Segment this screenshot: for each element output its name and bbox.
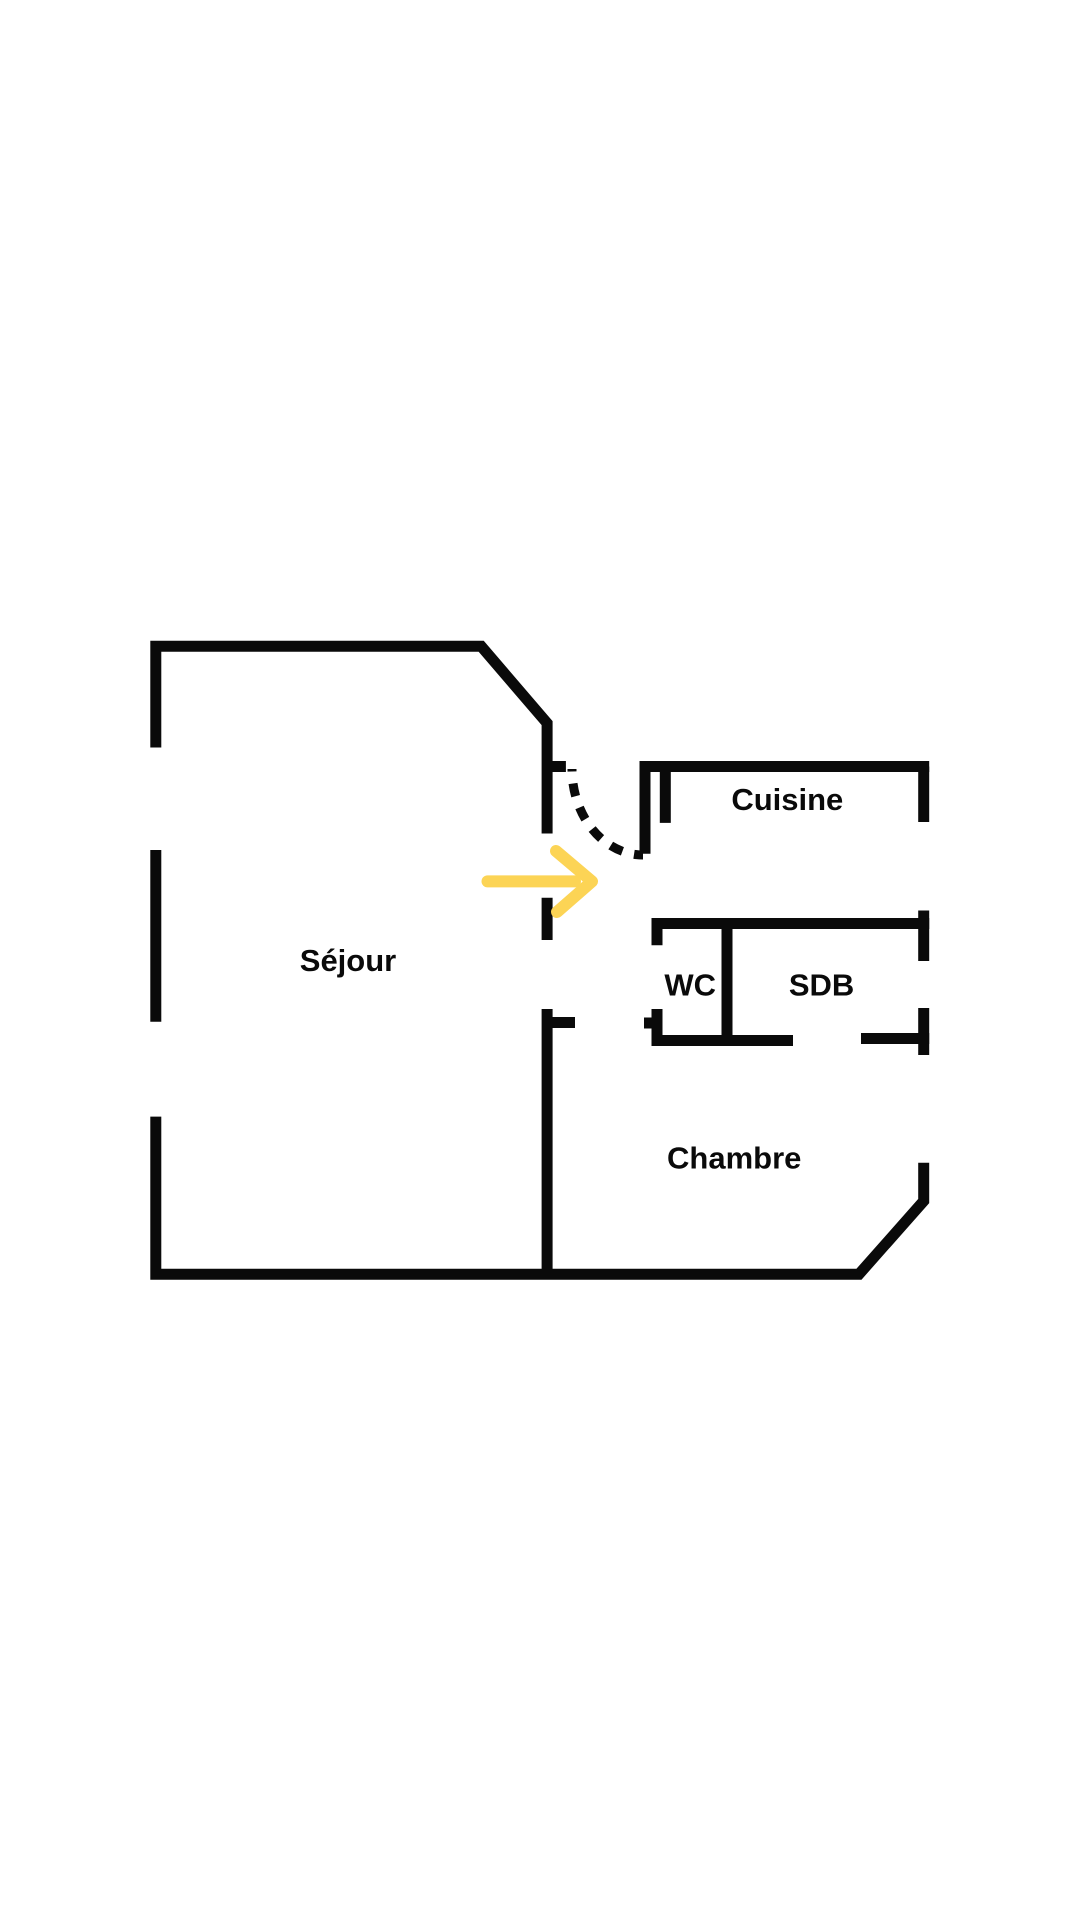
svg-text:Chambre: Chambre [667, 1140, 801, 1175]
svg-text:Cuisine: Cuisine [731, 782, 843, 817]
svg-text:WC: WC [664, 968, 716, 1003]
svg-text:Séjour: Séjour [300, 943, 396, 978]
svg-text:SDB: SDB [789, 968, 854, 1003]
